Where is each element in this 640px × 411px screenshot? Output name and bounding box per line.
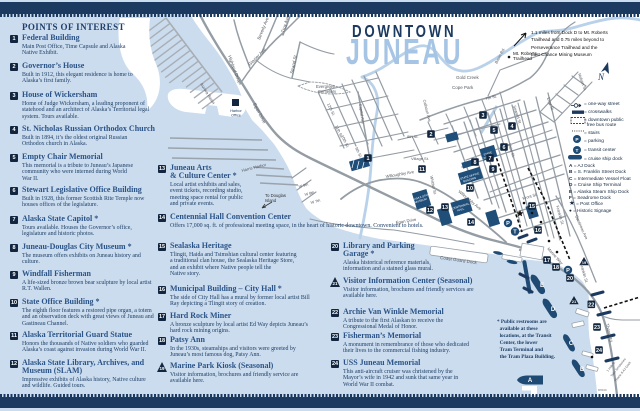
svg-text:13: 13 [442, 205, 448, 211]
svg-text:23: 23 [594, 325, 600, 331]
svg-text:C: C [569, 341, 574, 347]
svg-text:6: 6 [503, 145, 506, 151]
svg-text:7: 7 [489, 156, 492, 162]
svg-text:24: 24 [596, 348, 602, 354]
svg-text:21: 21 [572, 299, 577, 304]
svg-text:20: 20 [567, 276, 573, 282]
svg-text:4: 4 [511, 124, 514, 130]
svg-text:Gold Creek: Gold Creek [456, 75, 480, 80]
svg-text:Harbor: Harbor [230, 109, 242, 113]
svg-text:3: 3 [482, 113, 485, 119]
svg-text:A: A [528, 378, 533, 384]
svg-text:5: 5 [493, 128, 496, 134]
svg-text:14: 14 [468, 220, 474, 226]
svg-text:N: N [597, 72, 605, 82]
svg-text:Office: Office [231, 114, 241, 118]
svg-text:11: 11 [419, 167, 425, 173]
svg-text:T: T [513, 230, 517, 236]
svg-text:9: 9 [492, 167, 495, 173]
svg-text:Cope Park: Cope Park [452, 85, 474, 90]
svg-text:D: D [551, 307, 556, 313]
svg-text:Cemetery: Cemetery [318, 89, 337, 94]
svg-text:P: P [506, 221, 510, 227]
svg-text:18: 18 [553, 265, 559, 271]
svg-text:22: 22 [588, 302, 594, 308]
svg-text:17: 17 [544, 258, 550, 264]
svg-text:15: 15 [529, 204, 535, 210]
svg-text:10: 10 [467, 186, 473, 192]
svg-text:2: 2 [430, 132, 433, 138]
svg-text:16: 16 [535, 228, 541, 234]
svg-text:1: 1 [367, 156, 370, 162]
svg-text:8: 8 [474, 160, 477, 166]
svg-text:B: B [580, 367, 585, 373]
svg-text:P: P [566, 268, 570, 274]
svg-text:T: T [576, 148, 579, 154]
svg-text:8th St.: 8th St. [407, 134, 419, 139]
svg-text:M5919: M5919 [598, 388, 607, 392]
svg-text:E: E [540, 283, 544, 289]
svg-text:Village St.: Village St. [411, 156, 429, 161]
svg-text:12: 12 [427, 208, 433, 214]
